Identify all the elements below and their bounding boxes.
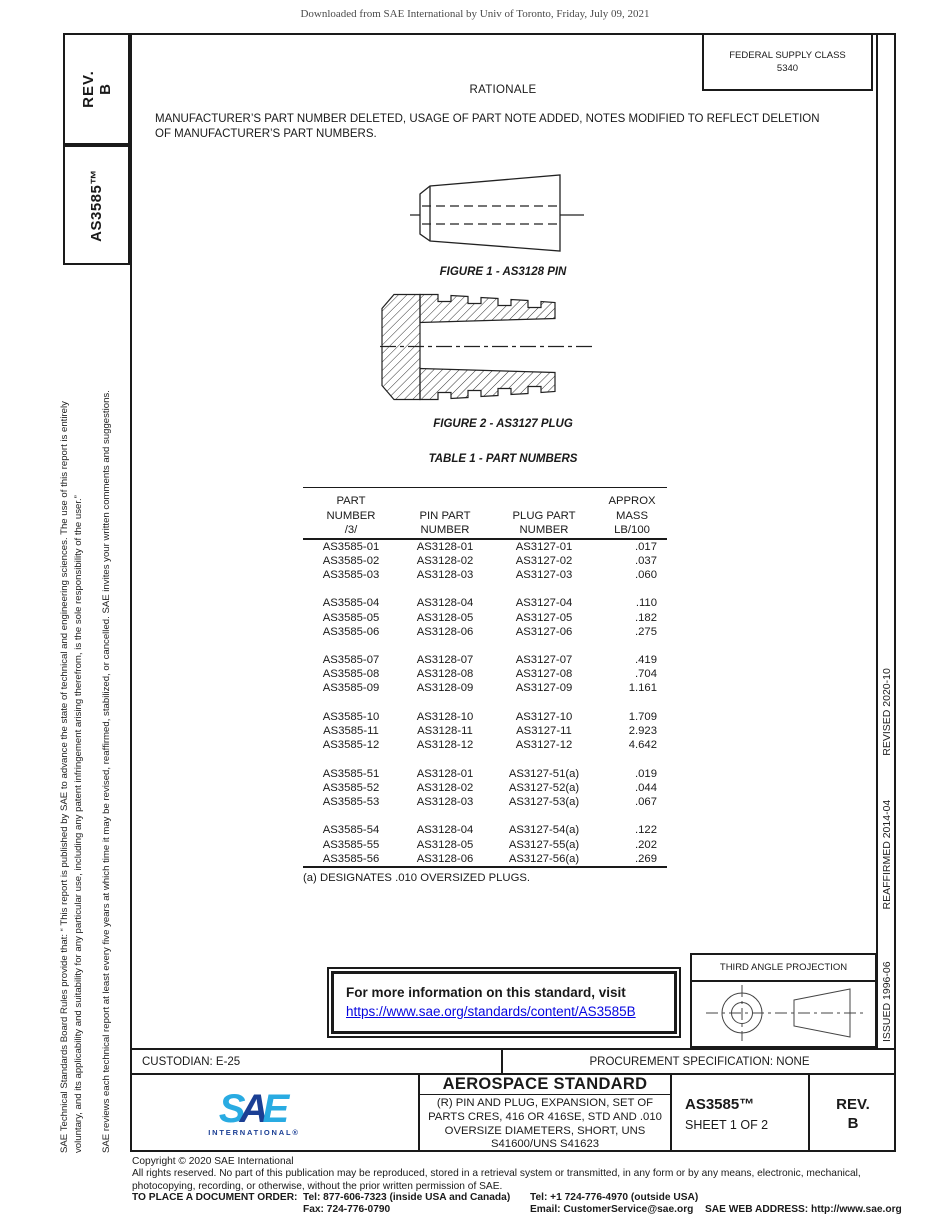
fsc-value: 5340 bbox=[777, 62, 798, 75]
table-row: AS3585-51AS3128-01AS3127-51(a).019 bbox=[303, 767, 667, 781]
table-cell: AS3127-10 bbox=[491, 711, 597, 723]
title-block: SAE INTERNATIONAL® AEROSPACE STANDARD (R… bbox=[130, 1075, 896, 1152]
table-cell: AS3128-03 bbox=[399, 796, 491, 808]
table-cell: AS3128-04 bbox=[399, 597, 491, 609]
rationale-text: MANUFACTURER’S PART NUMBER DELETED, USAG… bbox=[155, 112, 831, 141]
table-cell: AS3585-51 bbox=[303, 768, 399, 780]
table-bottom-rule bbox=[303, 866, 667, 868]
table-cell: AS3585-02 bbox=[303, 555, 399, 567]
table-header-cell: PIN PART bbox=[399, 509, 491, 524]
table-header-cell: APPROX bbox=[597, 494, 667, 509]
table-cell: AS3128-05 bbox=[399, 839, 491, 851]
table-header-row: /3/NUMBERNUMBERLB/100 bbox=[303, 523, 667, 538]
table-cell: AS3127-53(a) bbox=[491, 796, 597, 808]
table-header-cell: NUMBER bbox=[399, 523, 491, 538]
table-cell: AS3128-11 bbox=[399, 725, 491, 737]
third-angle-projection-symbol bbox=[692, 982, 875, 1044]
table-title: TABLE 1 - PART NUMBERS bbox=[130, 453, 876, 465]
table-cell: .122 bbox=[597, 824, 667, 836]
table-cell: AS3127-08 bbox=[491, 668, 597, 680]
web-address: SAE WEB ADDRESS: http://www.sae.org bbox=[705, 1204, 902, 1216]
table-header-cell: NUMBER bbox=[303, 509, 399, 524]
copyright-line: Copyright © 2020 SAE International bbox=[132, 1156, 896, 1168]
table-row: AS3585-56AS3128-06AS3127-56(a).269 bbox=[303, 852, 667, 866]
revision-band-divider bbox=[876, 35, 878, 1048]
table-cell: AS3585-52 bbox=[303, 782, 399, 794]
table-cell: AS3585-01 bbox=[303, 541, 399, 553]
table-header-cell: MASS bbox=[597, 509, 667, 524]
table-row: AS3585-09AS3128-09AS3127-091.161 bbox=[303, 681, 667, 695]
table-cell: AS3128-06 bbox=[399, 626, 491, 638]
figure2-caption: FIGURE 2 - AS3127 PLUG bbox=[130, 418, 876, 430]
table-header-row: PARTAPPROX bbox=[303, 494, 667, 509]
table-cell: AS3585-10 bbox=[303, 711, 399, 723]
revision-value: B bbox=[848, 1114, 859, 1133]
part-table-header: PARTAPPROXNUMBERPIN PARTPLUG PARTMASS/3/… bbox=[303, 494, 667, 538]
table-cell: AS3127-11 bbox=[491, 725, 597, 737]
table-cell: .419 bbox=[597, 654, 667, 666]
table-cell: .044 bbox=[597, 782, 667, 794]
table-cell: AS3127-51(a) bbox=[491, 768, 597, 780]
table-row: AS3585-07AS3128-07AS3127-07.419 bbox=[303, 653, 667, 667]
revision-history-vertical: ISSUED 1996-06REAFFIRMED 2014-04REVISED … bbox=[881, 668, 895, 1042]
table-group-gap bbox=[303, 582, 667, 596]
table-cell: 2.923 bbox=[597, 725, 667, 737]
table-header-cell: PART bbox=[303, 494, 399, 509]
table-footnote: (a) DESIGNATES .010 OVERSIZED PLUGS. bbox=[303, 872, 667, 884]
sae-disclaimer-vertical: SAE Technical Standards Board Rules prov… bbox=[58, 401, 85, 1153]
table-cell: AS3585-05 bbox=[303, 612, 399, 624]
document-number-cell: AS3585™ SHEET 1 OF 2 bbox=[672, 1075, 810, 1152]
rights-text: All rights reserved. No part of this pub… bbox=[132, 1168, 896, 1193]
table-header-row: NUMBERPIN PARTPLUG PARTMASS bbox=[303, 509, 667, 524]
table-header-cell: /3/ bbox=[303, 523, 399, 538]
table-cell: AS3128-07 bbox=[399, 654, 491, 666]
table-cell: AS3127-54(a) bbox=[491, 824, 597, 836]
copyright-block: Copyright © 2020 SAE International All r… bbox=[132, 1156, 896, 1193]
tel-inside: Tel: 877-606-7323 (inside USA and Canada… bbox=[303, 1192, 510, 1204]
table-row: AS3585-08AS3128-08AS3127-08.704 bbox=[303, 667, 667, 681]
table-cell: AS3127-12 bbox=[491, 739, 597, 751]
table-cell: AS3128-02 bbox=[399, 782, 491, 794]
table-row: AS3585-02AS3128-02AS3127-02.037 bbox=[303, 554, 667, 568]
table-cell: AS3128-12 bbox=[399, 739, 491, 751]
reaffirmed-date: REAFFIRMED 2014-04 bbox=[881, 800, 893, 910]
federal-supply-class-box: FEDERAL SUPPLY CLASS 5340 bbox=[702, 35, 873, 91]
procurement-cell: PROCUREMENT SPECIFICATION: NONE bbox=[503, 1050, 896, 1073]
table-cell: AS3128-10 bbox=[399, 711, 491, 723]
table-cell: 1.161 bbox=[597, 682, 667, 694]
table-cell: AS3585-54 bbox=[303, 824, 399, 836]
projection-title: THIRD ANGLE PROJECTION bbox=[692, 955, 875, 982]
table-header-cell: LB/100 bbox=[597, 523, 667, 538]
rev-side-box: REV. B bbox=[63, 33, 130, 145]
document-type-title: AEROSPACE STANDARD bbox=[420, 1075, 670, 1095]
table-cell: .182 bbox=[597, 612, 667, 624]
table-cell: .037 bbox=[597, 555, 667, 567]
table-row: AS3585-53AS3128-03AS3127-53(a).067 bbox=[303, 795, 667, 809]
table-cell: AS3585-08 bbox=[303, 668, 399, 680]
table-cell: AS3585-56 bbox=[303, 853, 399, 865]
table-header-cell bbox=[399, 494, 491, 509]
table-cell: AS3585-11 bbox=[303, 725, 399, 737]
table-cell: AS3128-04 bbox=[399, 824, 491, 836]
sheet-number: SHEET 1 OF 2 bbox=[685, 1118, 808, 1132]
table-cell: AS3127-04 bbox=[491, 597, 597, 609]
table-cell: .704 bbox=[597, 668, 667, 680]
table-row: AS3585-12AS3128-12AS3127-124.642 bbox=[303, 738, 667, 752]
sae-logo-subtext: INTERNATIONAL® bbox=[208, 1128, 299, 1137]
table-cell: .017 bbox=[597, 541, 667, 553]
table-row: AS3585-03AS3128-03AS3127-03.060 bbox=[303, 568, 667, 582]
table-row: AS3585-11AS3128-11AS3127-112.923 bbox=[303, 724, 667, 738]
doc-number-side-label: AS3585™ bbox=[88, 169, 105, 242]
table-cell: AS3585-09 bbox=[303, 682, 399, 694]
table-row: AS3585-04AS3128-04AS3127-04.110 bbox=[303, 596, 667, 610]
plug-figure-drawing bbox=[378, 288, 598, 411]
figure1-caption: FIGURE 1 - AS3128 PIN bbox=[130, 266, 876, 278]
sae-review-note-vertical: SAE reviews each technical report at lea… bbox=[100, 390, 114, 1153]
doc-number-side-box: AS3585™ bbox=[63, 145, 130, 265]
table-cell: AS3128-01 bbox=[399, 541, 491, 553]
rev-side-label: REV. B bbox=[79, 70, 113, 108]
more-info-text: For more information on this standard, v… bbox=[346, 983, 662, 1002]
table-cell: .067 bbox=[597, 796, 667, 808]
table-cell: AS3128-02 bbox=[399, 555, 491, 567]
table-cell: AS3128-03 bbox=[399, 569, 491, 581]
table-cell: AS3127-02 bbox=[491, 555, 597, 567]
table-cell: AS3128-01 bbox=[399, 768, 491, 780]
table-row: AS3585-55AS3128-05AS3127-55(a).202 bbox=[303, 837, 667, 851]
table-cell: .110 bbox=[597, 597, 667, 609]
table-cell: 4.642 bbox=[597, 739, 667, 751]
table-cell: AS3127-03 bbox=[491, 569, 597, 581]
table-cell: .202 bbox=[597, 839, 667, 851]
table-header-cell: NUMBER bbox=[491, 523, 597, 538]
custodian-cell: CUSTODIAN: E-25 bbox=[130, 1050, 503, 1073]
table-cell: AS3127-05 bbox=[491, 612, 597, 624]
table-cell: AS3585-12 bbox=[303, 739, 399, 751]
table-cell: AS3127-07 bbox=[491, 654, 597, 666]
table-cell: .269 bbox=[597, 853, 667, 865]
table-row: AS3585-54AS3128-04AS3127-54(a).122 bbox=[303, 823, 667, 837]
more-info-box: For more information on this standard, v… bbox=[327, 967, 681, 1038]
document-subtitle: (R) PIN AND PLUG, EXPANSION, SET OF PART… bbox=[420, 1095, 670, 1154]
table-group-gap bbox=[303, 639, 667, 653]
table-row: AS3585-52AS3128-02AS3127-52(a).044 bbox=[303, 781, 667, 795]
custodian-row: CUSTODIAN: E-25 PROCUREMENT SPECIFICATIO… bbox=[130, 1048, 896, 1075]
table-cell: AS3585-06 bbox=[303, 626, 399, 638]
table-cell: AS3585-07 bbox=[303, 654, 399, 666]
table-cell: AS3127-55(a) bbox=[491, 839, 597, 851]
issued-date: ISSUED 1996-06 bbox=[881, 961, 893, 1042]
table-row: AS3585-06AS3128-06AS3127-06.275 bbox=[303, 625, 667, 639]
pin-figure-drawing bbox=[392, 162, 592, 272]
table-cell: AS3127-56(a) bbox=[491, 853, 597, 865]
download-watermark: Downloaded from SAE International by Uni… bbox=[0, 8, 950, 20]
table-row: AS3585-01AS3128-01AS3127-01.017 bbox=[303, 540, 667, 554]
third-angle-projection-box: THIRD ANGLE PROJECTION bbox=[690, 953, 877, 1048]
table-cell: AS3128-09 bbox=[399, 682, 491, 694]
table-cell: AS3127-06 bbox=[491, 626, 597, 638]
email-address: Email: CustomerService@sae.org bbox=[530, 1204, 693, 1216]
fsc-label: FEDERAL SUPPLY CLASS bbox=[729, 49, 846, 62]
order-label: TO PLACE A DOCUMENT ORDER: bbox=[132, 1192, 297, 1204]
revision-label: REV. bbox=[836, 1095, 870, 1114]
sae-logo-letters: SAE bbox=[219, 1091, 289, 1127]
table-group-gap bbox=[303, 809, 667, 823]
revised-date: REVISED 2020-10 bbox=[881, 668, 893, 756]
table-cell: .275 bbox=[597, 626, 667, 638]
rationale-heading: RATIONALE bbox=[130, 84, 876, 96]
table-cell: AS3128-05 bbox=[399, 612, 491, 624]
part-numbers-table: PARTAPPROXNUMBERPIN PARTPLUG PARTMASS/3/… bbox=[303, 487, 667, 884]
sae-logo: SAE INTERNATIONAL® bbox=[208, 1091, 299, 1137]
table-row: AS3585-10AS3128-10AS3127-101.709 bbox=[303, 710, 667, 724]
sae-logo-cell: SAE INTERNATIONAL® bbox=[130, 1075, 420, 1152]
table-cell: .019 bbox=[597, 768, 667, 780]
part-table-body: AS3585-01AS3128-01AS3127-01.017AS3585-02… bbox=[303, 540, 667, 866]
table-cell: AS3127-01 bbox=[491, 541, 597, 553]
table-group-gap bbox=[303, 696, 667, 710]
table-group-gap bbox=[303, 752, 667, 766]
table-cell: AS3128-08 bbox=[399, 668, 491, 680]
document-number: AS3585™ bbox=[685, 1096, 808, 1113]
table-cell: AS3585-55 bbox=[303, 839, 399, 851]
table-cell: 1.709 bbox=[597, 711, 667, 723]
table-header-cell bbox=[491, 494, 597, 509]
document-page: Downloaded from SAE International by Uni… bbox=[0, 0, 950, 1230]
table-row: AS3585-05AS3128-05AS3127-05.182 bbox=[303, 610, 667, 624]
table-header-cell: PLUG PART bbox=[491, 509, 597, 524]
tel-outside: Tel: +1 724-776-4970 (outside USA) bbox=[530, 1192, 698, 1204]
table-cell: AS3128-06 bbox=[399, 853, 491, 865]
fax-number: Fax: 724-776-0790 bbox=[303, 1204, 390, 1216]
table-cell: .060 bbox=[597, 569, 667, 581]
table-cell: AS3585-03 bbox=[303, 569, 399, 581]
table-cell: AS3127-09 bbox=[491, 682, 597, 694]
table-cell: AS3585-04 bbox=[303, 597, 399, 609]
table-cell: AS3585-53 bbox=[303, 796, 399, 808]
document-type-cell: AEROSPACE STANDARD (R) PIN AND PLUG, EXP… bbox=[420, 1075, 672, 1152]
revision-cell: REV. B bbox=[810, 1075, 896, 1152]
table-cell: AS3127-52(a) bbox=[491, 782, 597, 794]
standard-link[interactable]: https://www.sae.org/standards/content/AS… bbox=[346, 1004, 636, 1019]
